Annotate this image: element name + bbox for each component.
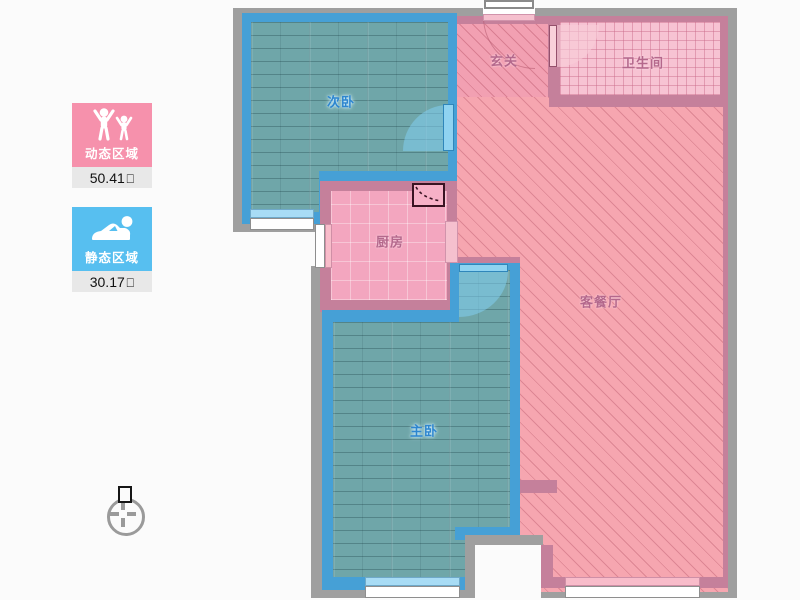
dynamic-area-number: 50.41 bbox=[90, 170, 125, 186]
living-wall-stub bbox=[520, 480, 557, 493]
label-master-bedroom: 主卧 bbox=[410, 421, 438, 440]
secondary-bedroom-door-leaf bbox=[443, 104, 454, 151]
outer-wall-right bbox=[727, 8, 737, 598]
legend-static-label: 静态区域 bbox=[85, 247, 139, 271]
entry-sill bbox=[483, 14, 535, 21]
stove-icon bbox=[412, 183, 445, 207]
master-bedroom-door-leaf bbox=[459, 264, 508, 272]
master-bedroom-alcove-wall-edge bbox=[450, 257, 520, 263]
notch-opening bbox=[475, 545, 541, 598]
label-secondary-bedroom: 次卧 bbox=[327, 92, 355, 111]
secondary-bedroom-window-outer bbox=[250, 218, 314, 230]
secondary-bedroom-window bbox=[250, 209, 314, 218]
outer-wall-left-lower bbox=[311, 266, 322, 598]
legend-static-area-card: 静态区域 bbox=[72, 207, 152, 271]
bathroom-door-leaf bbox=[549, 25, 557, 67]
sleeper-icon bbox=[89, 213, 135, 245]
entry-door-leaf bbox=[484, 0, 534, 9]
notch-wall-gray-top bbox=[465, 535, 543, 545]
kitchen-window bbox=[325, 224, 332, 268]
compass-icon bbox=[107, 498, 145, 536]
living-window-outer bbox=[565, 586, 700, 598]
legend-static-value: 30.17□ bbox=[72, 271, 152, 292]
compass-tick-south bbox=[121, 518, 125, 527]
compass-tick-east bbox=[127, 512, 136, 516]
label-bathroom: 卫生间 bbox=[622, 53, 664, 72]
legend-dynamic-label: 动态区域 bbox=[85, 143, 139, 167]
outer-wall-left bbox=[233, 8, 243, 232]
label-kitchen: 厨房 bbox=[376, 232, 404, 251]
legend-dynamic-area-card: 动态区域 bbox=[72, 103, 152, 167]
master-bedroom-window bbox=[365, 577, 460, 586]
living-window bbox=[565, 577, 700, 586]
compass-tick-west bbox=[110, 512, 119, 516]
label-hall: 玄关 bbox=[490, 51, 518, 70]
kitchen-opening-sill bbox=[445, 221, 458, 263]
static-area-number: 30.17 bbox=[90, 274, 125, 290]
notch-wall-mauve-right bbox=[541, 545, 553, 588]
living-wall-right bbox=[723, 97, 728, 588]
label-living-dining: 客餐厅 bbox=[580, 292, 622, 311]
compass-north-marker bbox=[118, 486, 132, 503]
floorplan-canvas: 动态区域 50.41□ 静态区域 30.17□ bbox=[0, 0, 800, 600]
kitchen-window-outer bbox=[315, 224, 325, 268]
static-area-unit: □ bbox=[127, 274, 134, 290]
dynamic-area-unit: □ bbox=[127, 170, 134, 186]
master-bedroom-window-outer bbox=[365, 586, 460, 598]
people-icon bbox=[90, 107, 134, 141]
notch-wall-gray-left bbox=[465, 535, 475, 598]
legend-dynamic-value: 50.41□ bbox=[72, 167, 152, 188]
